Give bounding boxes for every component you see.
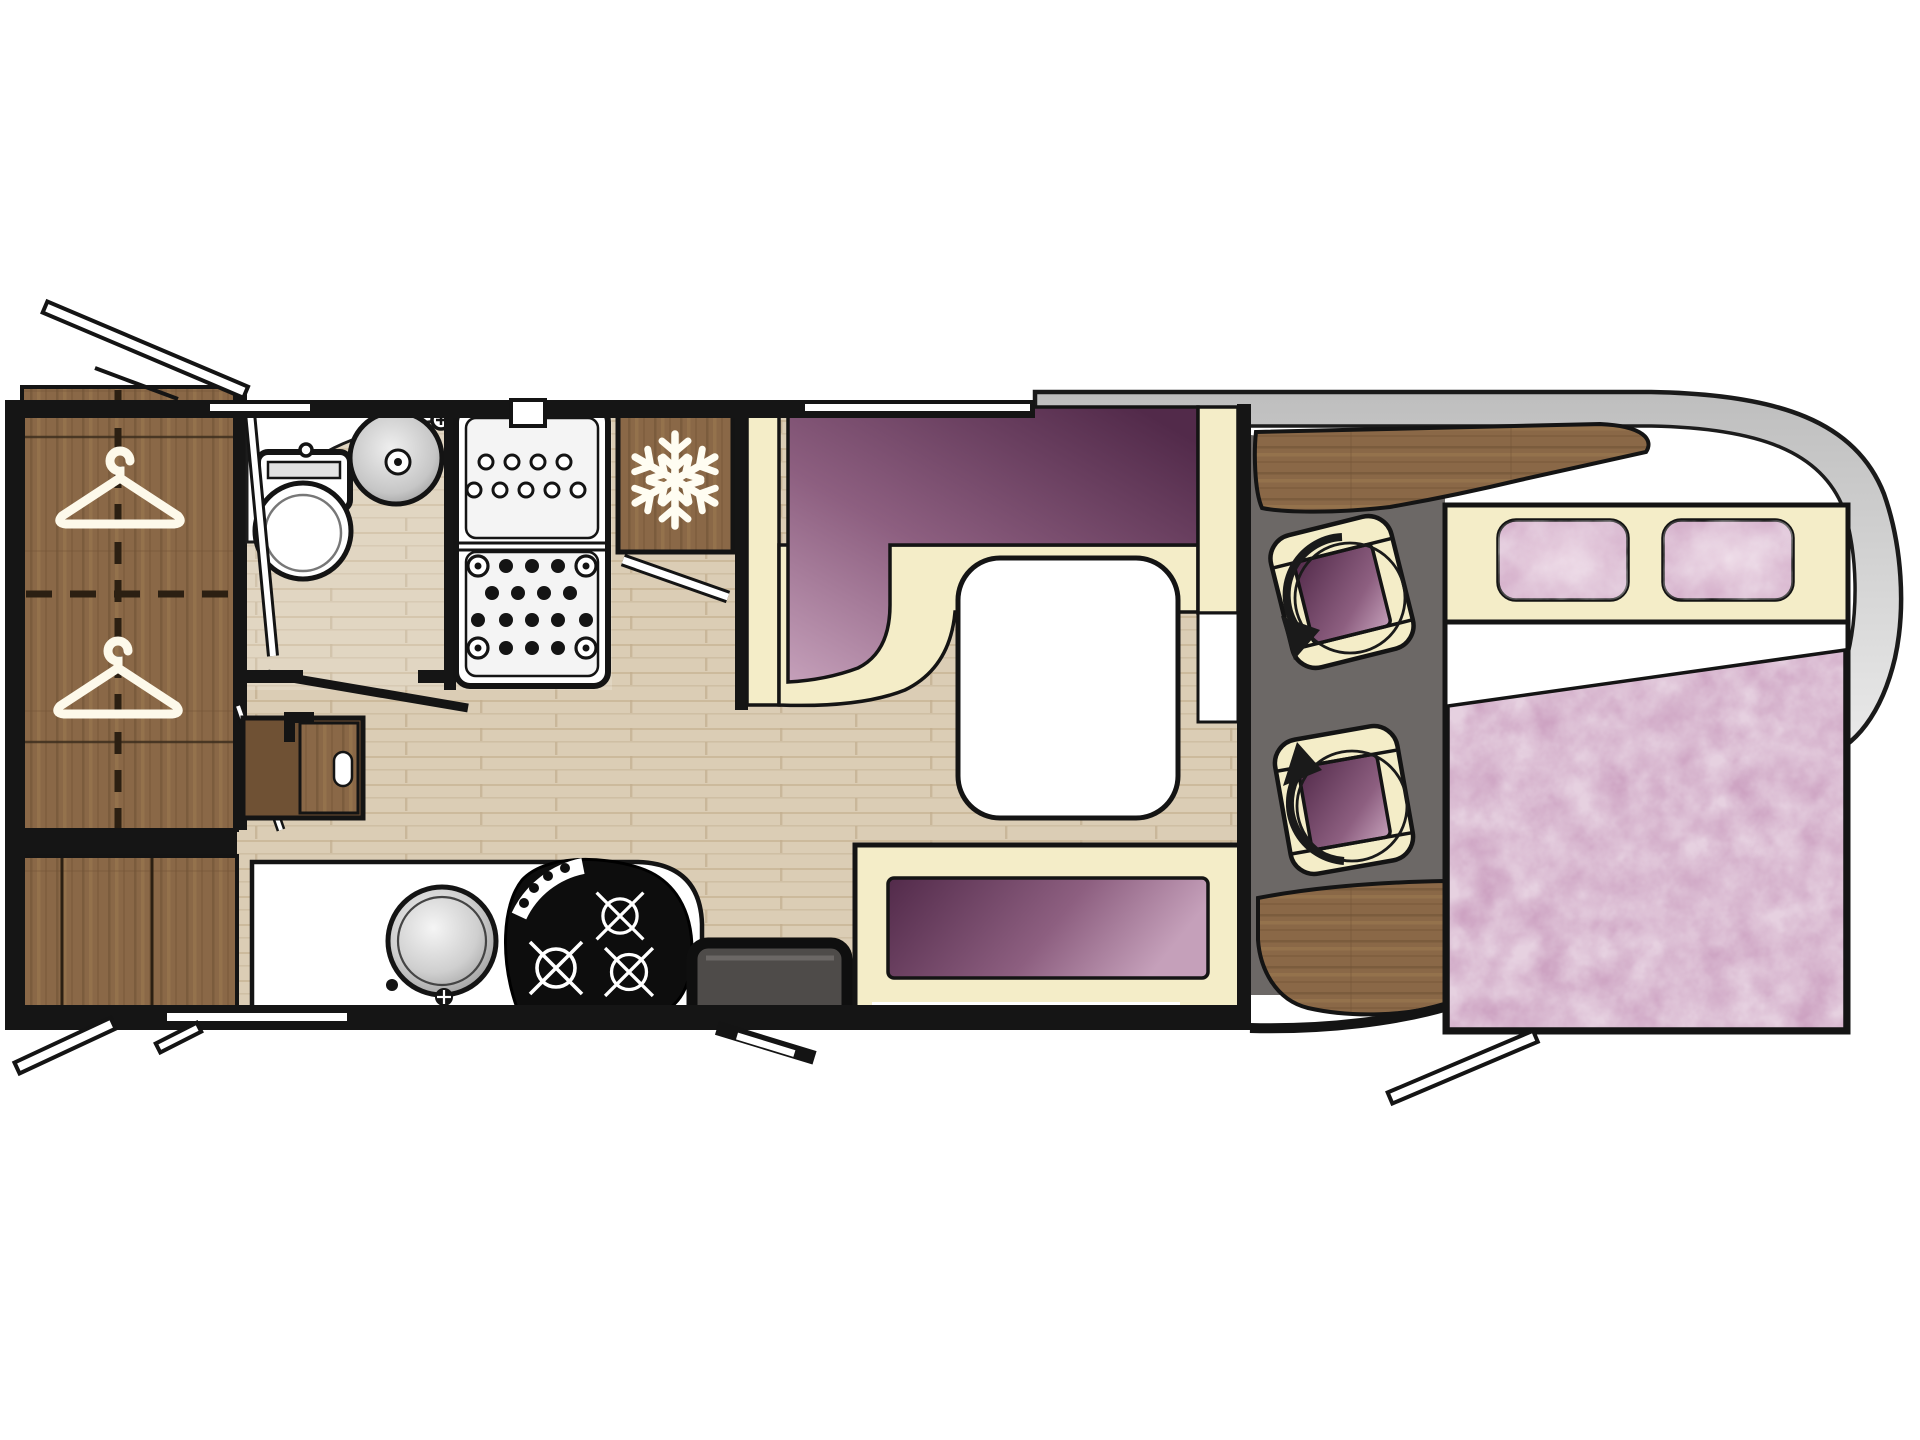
service-flap bbox=[1388, 1031, 1538, 1104]
dinette-table[interactable] bbox=[958, 558, 1178, 818]
side-bench bbox=[855, 845, 1243, 1020]
wall-cab-divider bbox=[1237, 404, 1251, 1030]
lower-cabinet bbox=[22, 856, 237, 1008]
floorplan-page bbox=[0, 0, 1920, 1440]
kitchen-hob bbox=[506, 859, 692, 1019]
dashboard-lower bbox=[1258, 881, 1445, 1014]
window-slit bbox=[210, 404, 310, 411]
pillow bbox=[1498, 520, 1628, 600]
wardrobe bbox=[22, 387, 237, 1008]
drop-down-bed bbox=[1445, 505, 1848, 1032]
shower bbox=[456, 408, 608, 686]
kitchen bbox=[252, 859, 702, 1019]
dinette-seat-right bbox=[1198, 407, 1238, 613]
wall-left bbox=[5, 400, 25, 1030]
side-table bbox=[238, 706, 363, 830]
pillow bbox=[1663, 520, 1793, 600]
window-slit bbox=[805, 404, 1030, 411]
window-slit bbox=[167, 1013, 347, 1021]
bed-duvet bbox=[1448, 650, 1845, 1029]
side-cabinet bbox=[1198, 613, 1238, 722]
roof-flap bbox=[43, 301, 248, 397]
dinette-seat-left bbox=[747, 414, 779, 705]
motorhome-floorplan bbox=[0, 0, 1920, 1440]
shower-head-notch bbox=[511, 400, 545, 426]
